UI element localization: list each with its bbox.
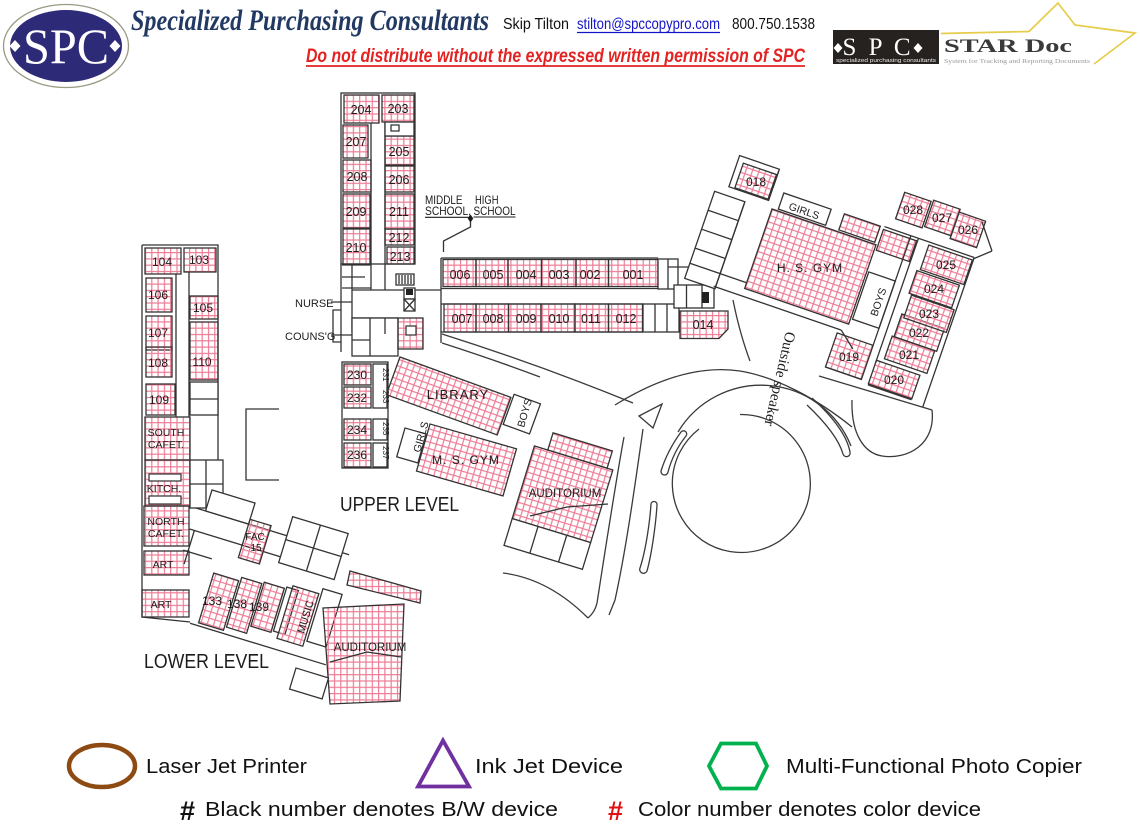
- svg-text:021: 021: [899, 348, 919, 362]
- svg-text:800.750.1538: 800.750.1538: [732, 16, 815, 33]
- svg-text:002: 002: [580, 268, 601, 282]
- svg-text:230: 230: [347, 368, 367, 382]
- svg-text:107: 107: [148, 326, 168, 340]
- svg-text:025: 025: [936, 258, 956, 272]
- svg-text:#: #: [608, 796, 623, 826]
- svg-text:108: 108: [148, 356, 168, 370]
- svg-text:139: 139: [249, 600, 269, 614]
- svg-text:#: #: [180, 796, 195, 826]
- svg-text:Laser Jet Printer: Laser Jet Printer: [146, 755, 307, 778]
- svg-text:103: 103: [189, 253, 209, 267]
- svg-text:019: 019: [839, 350, 859, 364]
- svg-text:CAFET.: CAFET.: [148, 528, 184, 540]
- svg-text:LIBRARY: LIBRARY: [427, 387, 489, 402]
- svg-text:109: 109: [149, 393, 169, 407]
- svg-text:026: 026: [958, 223, 978, 237]
- svg-text:020: 020: [884, 373, 904, 387]
- svg-text:specialized purchasing consult: specialized purchasing consultants: [836, 58, 936, 64]
- svg-text:105: 105: [193, 301, 213, 315]
- svg-text:ART: ART: [151, 599, 172, 611]
- svg-text:SCHOOL,: SCHOOL,: [425, 204, 471, 218]
- svg-text:Ink Jet Device: Ink Jet Device: [475, 755, 623, 778]
- svg-text:232: 232: [347, 391, 367, 405]
- svg-text:211: 211: [389, 205, 409, 219]
- svg-text:007: 007: [452, 312, 473, 326]
- svg-text:NORTH: NORTH: [147, 516, 184, 528]
- svg-text:006: 006: [450, 268, 471, 282]
- svg-text:028: 028: [903, 203, 923, 217]
- svg-text:011: 011: [581, 312, 601, 326]
- svg-text:Skip Tilton: Skip Tilton: [503, 16, 569, 33]
- svg-text:Black number denotes B/W devic: Black number denotes B/W device: [205, 798, 558, 821]
- svg-text:KITCH.: KITCH.: [147, 483, 181, 495]
- svg-text:SPC: SPC: [23, 18, 109, 74]
- svg-text:018: 018: [746, 175, 766, 189]
- svg-text:Multi-Functional Photo Copier: Multi-Functional Photo Copier: [786, 755, 1082, 778]
- svg-text:Specialized Purchasing Consult: Specialized Purchasing Consultants: [131, 4, 489, 37]
- svg-text:022: 022: [909, 326, 929, 340]
- svg-text:212: 212: [389, 231, 410, 245]
- svg-text:SCHOOL: SCHOOL: [474, 204, 516, 218]
- svg-text:236: 236: [347, 448, 367, 462]
- svg-text:STAR Doc: STAR Doc: [944, 36, 1072, 57]
- svg-text:110: 110: [192, 355, 211, 369]
- svg-text:LOWER LEVEL: LOWER LEVEL: [144, 651, 269, 673]
- svg-text:207: 207: [346, 135, 367, 149]
- svg-text:204: 204: [351, 103, 372, 117]
- svg-text:205: 205: [389, 145, 410, 159]
- svg-text:003: 003: [549, 268, 570, 282]
- svg-text:209: 209: [346, 205, 367, 219]
- svg-text:AUDITORIUM: AUDITORIUM: [334, 642, 407, 654]
- svg-text:231: 231: [381, 368, 390, 382]
- svg-text:AUDITORIUM: AUDITORIUM: [529, 488, 602, 500]
- svg-text:ART: ART: [153, 559, 174, 571]
- svg-text:012: 012: [616, 312, 637, 326]
- svg-text:H. S. GYM: H. S. GYM: [777, 261, 843, 275]
- svg-text:010: 010: [549, 312, 570, 326]
- svg-text:005: 005: [483, 268, 504, 282]
- svg-text:203: 203: [388, 102, 409, 116]
- svg-text:133: 133: [202, 594, 222, 608]
- svg-text:COUNS'G: COUNS'G: [285, 331, 335, 343]
- svg-text:206: 206: [389, 173, 410, 187]
- svg-text:Color number denotes color dev: Color number denotes color device: [638, 798, 981, 821]
- svg-text:014: 014: [693, 318, 714, 332]
- svg-text:234: 234: [347, 423, 367, 437]
- svg-text:15: 15: [250, 543, 262, 554]
- svg-text:024: 024: [924, 282, 944, 296]
- svg-text:023: 023: [919, 307, 939, 321]
- svg-text:009: 009: [516, 312, 537, 326]
- svg-text:237: 237: [381, 446, 390, 460]
- svg-text:System for Tracking and Report: System for Tracking and Reporting Docume…: [944, 58, 1091, 65]
- svg-text:SOUTH: SOUTH: [148, 427, 185, 439]
- svg-text:104: 104: [152, 255, 172, 269]
- svg-text:001: 001: [623, 268, 644, 282]
- svg-text:210: 210: [346, 241, 367, 255]
- svg-text:008: 008: [483, 312, 504, 326]
- svg-text:004: 004: [516, 268, 537, 282]
- svg-text:stilton@spccopypro.com: stilton@spccopypro.com: [577, 16, 720, 33]
- svg-text:M. S. GYM: M. S. GYM: [432, 453, 500, 467]
- svg-text:FAC: FAC: [245, 532, 264, 543]
- svg-text:UPPER LEVEL: UPPER LEVEL: [340, 494, 459, 516]
- svg-text:027: 027: [932, 211, 952, 225]
- svg-text:106: 106: [148, 288, 168, 302]
- svg-text:S P C: S P C: [842, 34, 913, 61]
- svg-text:213: 213: [390, 250, 411, 264]
- svg-text:NURSE: NURSE: [295, 298, 334, 310]
- svg-text:208: 208: [347, 170, 368, 184]
- svg-text:138: 138: [227, 597, 247, 611]
- svg-text:235: 235: [381, 422, 390, 436]
- svg-text:Do not distribute without the: Do not distribute without the expressed …: [306, 46, 805, 67]
- svg-text:CAFET.: CAFET.: [148, 439, 184, 451]
